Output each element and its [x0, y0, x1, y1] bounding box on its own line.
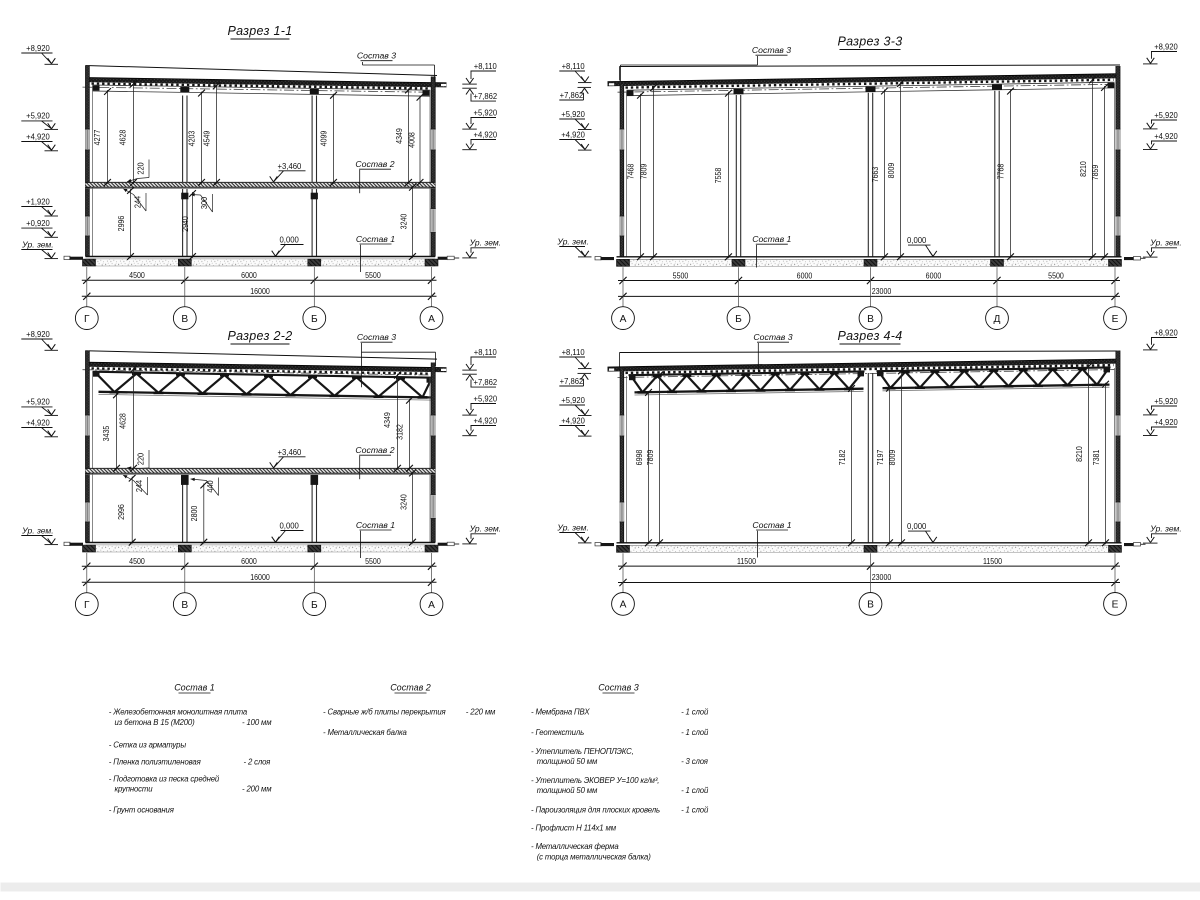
svg-text:толщиной 50 мм: толщиной 50 мм: [537, 757, 598, 766]
svg-text:Г: Г: [84, 314, 90, 325]
svg-text:7182: 7182: [837, 450, 847, 466]
svg-text:Состав 1: Состав 1: [174, 683, 215, 693]
svg-text:8009: 8009: [886, 163, 896, 179]
svg-text:Ур. зем.: Ур. зем.: [469, 238, 501, 248]
svg-text:11500: 11500: [737, 556, 756, 566]
svg-text:- Сетка из арматуры: - Сетка из арматуры: [109, 741, 187, 750]
svg-text:Б: Б: [735, 314, 742, 325]
svg-text:Разрез 3-3: Разрез 3-3: [838, 35, 903, 49]
svg-text:- Утеплитель ПЕНОПЛЭКС,: - Утеплитель ПЕНОПЛЭКС,: [531, 747, 634, 756]
svg-text:0,000: 0,000: [280, 235, 300, 244]
svg-text:+4,920: +4,920: [474, 416, 498, 425]
svg-text:6000: 6000: [241, 557, 257, 567]
svg-text:6000: 6000: [797, 271, 813, 281]
svg-text:+7,862: +7,862: [474, 92, 498, 101]
svg-text:+5,920: +5,920: [1154, 396, 1178, 405]
svg-text:- 1 слой: - 1 слой: [681, 708, 709, 717]
svg-text:- Пароизоляция для плоских кро: - Пароизоляция для плоских кровель: [531, 806, 660, 815]
svg-text:+4,920: +4,920: [474, 130, 498, 139]
svg-text:- 200 мм: - 200 мм: [242, 785, 272, 794]
svg-text:7809: 7809: [645, 450, 655, 466]
svg-text:7768: 7768: [996, 164, 1006, 180]
svg-text:4500: 4500: [129, 557, 145, 567]
svg-text:2996: 2996: [116, 504, 126, 520]
svg-text:В: В: [181, 600, 188, 611]
svg-text:3182: 3182: [395, 424, 405, 440]
svg-text:- 2 слоя: - 2 слоя: [244, 758, 272, 767]
svg-text:Состав 3: Состав 3: [598, 683, 639, 693]
svg-text:+8,920: +8,920: [26, 329, 50, 338]
svg-text:4349: 4349: [382, 412, 392, 428]
svg-text:- 3 слоя: - 3 слоя: [681, 757, 709, 766]
svg-text:+8,920: +8,920: [1154, 42, 1178, 51]
svg-text:2940: 2940: [180, 216, 190, 232]
svg-text:Ур. зем.: Ур. зем.: [469, 524, 501, 534]
svg-text:крупности: крупности: [115, 785, 154, 794]
svg-text:Ур. зем.: Ур. зем.: [1149, 238, 1181, 248]
svg-text:- Металлическая ферма: - Металлическая ферма: [531, 842, 619, 851]
svg-text:16000: 16000: [250, 286, 270, 296]
svg-text:- Сварные ж/б плиты перекрытия: - Сварные ж/б плиты перекрытия: [323, 708, 447, 717]
svg-text:+4,920: +4,920: [1154, 131, 1178, 140]
svg-text:5500: 5500: [1048, 271, 1064, 281]
svg-text:Состав 3: Состав 3: [752, 45, 791, 55]
svg-text:4203: 4203: [187, 131, 197, 147]
svg-text:+5,920: +5,920: [26, 397, 50, 406]
svg-text:+5,920: +5,920: [561, 395, 585, 404]
svg-text:+0,920: +0,920: [26, 219, 50, 228]
svg-text:толщиной 50 мм: толщиной 50 мм: [537, 786, 598, 795]
svg-text:+7,862: +7,862: [560, 376, 584, 385]
svg-text:из бетона В 15 (М200): из бетона В 15 (М200): [115, 718, 196, 727]
svg-text:Состав 2: Состав 2: [355, 159, 394, 169]
svg-text:+4,920: +4,920: [26, 418, 50, 427]
svg-text:3435: 3435: [101, 426, 111, 442]
svg-text:4008: 4008: [407, 132, 417, 148]
svg-text:- Подготовка из песка средней: - Подготовка из песка средней: [109, 775, 220, 784]
svg-text:+8,110: +8,110: [474, 61, 498, 70]
svg-text:+8,110: +8,110: [562, 61, 586, 70]
svg-text:+5,920: +5,920: [561, 109, 585, 118]
svg-text:7859: 7859: [1090, 165, 1100, 181]
svg-text:23000: 23000: [872, 573, 892, 583]
svg-text:Состав 2: Состав 2: [355, 445, 394, 455]
svg-text:- Утеплитель ЭКОВЕР У=100 кг/м: - Утеплитель ЭКОВЕР У=100 кг/м³,: [531, 776, 659, 785]
svg-text:Б: Б: [311, 600, 318, 611]
svg-text:Ур. зем.: Ур. зем.: [556, 236, 588, 246]
svg-text:- Пленка полиэтиленовая: - Пленка полиэтиленовая: [109, 758, 202, 767]
svg-text:Состав 1: Состав 1: [752, 520, 791, 530]
svg-text:Е: Е: [1112, 600, 1119, 611]
svg-text:4628: 4628: [118, 413, 128, 429]
svg-text:7197: 7197: [875, 450, 885, 466]
svg-text:Д: Д: [994, 314, 1001, 325]
svg-text:А: А: [620, 600, 627, 611]
svg-text:300: 300: [200, 196, 210, 209]
svg-text:+5,920: +5,920: [1154, 110, 1178, 119]
svg-text:+4,920: +4,920: [26, 132, 50, 141]
svg-text:Ур. зем.: Ур. зем.: [556, 522, 588, 532]
svg-text:7468: 7468: [626, 164, 636, 180]
svg-text:Состав 1: Состав 1: [356, 234, 395, 244]
svg-text:0,000: 0,000: [907, 236, 927, 245]
svg-text:- 220 мм: - 220 мм: [466, 708, 496, 717]
svg-text:+8,110: +8,110: [562, 347, 586, 356]
svg-text:(с торца металлическая балка): (с торца металлическая балка): [537, 853, 652, 862]
svg-text:Ур. зем.: Ур. зем.: [21, 525, 53, 535]
svg-text:+5,920: +5,920: [26, 111, 50, 120]
svg-text:- 1 слой: - 1 слой: [681, 786, 709, 795]
svg-text:220: 220: [136, 162, 146, 175]
svg-text:Г: Г: [84, 600, 90, 611]
svg-text:Е: Е: [1112, 314, 1119, 325]
svg-text:244: 244: [133, 195, 143, 208]
svg-text:Разрез 1-1: Разрез 1-1: [228, 24, 293, 38]
svg-text:4628: 4628: [118, 130, 128, 146]
svg-text:440: 440: [206, 480, 216, 493]
svg-text:7663: 7663: [870, 167, 880, 183]
svg-text:- Геотекстиль: - Геотекстиль: [531, 728, 584, 737]
svg-text:+3,460: +3,460: [278, 161, 302, 170]
svg-text:Состав 1: Состав 1: [752, 234, 791, 244]
svg-text:Ур. зем.: Ур. зем.: [1149, 524, 1181, 534]
svg-text:В: В: [181, 314, 188, 325]
svg-text:7809: 7809: [639, 164, 649, 180]
svg-text:7558: 7558: [713, 168, 723, 184]
svg-text:8009: 8009: [887, 450, 897, 466]
svg-text:- 1 слой: - 1 слой: [681, 806, 709, 815]
svg-text:5500: 5500: [673, 271, 689, 281]
svg-text:+7,862: +7,862: [474, 378, 498, 387]
svg-text:4500: 4500: [129, 271, 145, 281]
svg-text:- Профлист Н 114х1 мм: - Профлист Н 114х1 мм: [531, 824, 617, 833]
svg-text:Разрез 4-4: Разрез 4-4: [838, 329, 903, 343]
svg-text:+3,460: +3,460: [278, 447, 302, 456]
svg-text:220: 220: [136, 452, 146, 465]
svg-text:0,000: 0,000: [907, 522, 927, 531]
svg-text:4549: 4549: [202, 131, 212, 147]
svg-text:- 1 слой: - 1 слой: [681, 728, 709, 737]
svg-text:+7,862: +7,862: [560, 90, 584, 99]
svg-text:Состав 1: Состав 1: [356, 520, 395, 530]
svg-text:23000: 23000: [872, 286, 892, 296]
svg-text:+4,920: +4,920: [561, 130, 585, 139]
svg-text:Состав 3: Состав 3: [357, 332, 396, 342]
svg-text:6000: 6000: [926, 271, 942, 281]
svg-text:4277: 4277: [92, 130, 102, 146]
svg-text:Состав 2: Состав 2: [390, 683, 431, 693]
svg-text:- Металлическая балка: - Металлическая балка: [323, 728, 408, 737]
svg-text:3240: 3240: [399, 214, 409, 230]
svg-text:+1,920: +1,920: [26, 197, 50, 206]
svg-text:+4,920: +4,920: [1154, 417, 1178, 426]
svg-text:16000: 16000: [250, 572, 270, 582]
svg-text:+8,920: +8,920: [1154, 328, 1178, 337]
svg-text:- Железобетонная монолитная п: - Железобетонная монолитная плита: [109, 708, 248, 717]
svg-text:- 100 мм: - 100 мм: [242, 718, 272, 727]
svg-text:6000: 6000: [241, 271, 257, 281]
svg-text:4349: 4349: [394, 128, 404, 144]
svg-text:Состав 3: Состав 3: [753, 332, 792, 342]
svg-text:11500: 11500: [983, 556, 1002, 566]
svg-text:+5,920: +5,920: [474, 108, 498, 117]
svg-text:8210: 8210: [1074, 446, 1084, 462]
svg-text:А: А: [428, 600, 435, 611]
svg-text:+5,920: +5,920: [474, 394, 498, 403]
svg-text:В: В: [867, 600, 874, 611]
svg-text:5500: 5500: [365, 271, 381, 281]
svg-text:5500: 5500: [365, 557, 381, 567]
svg-text:2800: 2800: [189, 506, 199, 522]
svg-text:6998: 6998: [634, 450, 644, 466]
svg-text:Состав 3: Состав 3: [357, 51, 396, 61]
svg-text:8210: 8210: [1078, 161, 1088, 177]
svg-text:2996: 2996: [116, 216, 126, 232]
svg-text:Б: Б: [311, 314, 318, 325]
svg-text:А: А: [620, 314, 627, 325]
svg-text:7381: 7381: [1091, 450, 1101, 466]
svg-text:+8,110: +8,110: [474, 347, 498, 356]
svg-text:+8,920: +8,920: [26, 43, 50, 52]
svg-text:3240: 3240: [399, 494, 409, 510]
svg-text:А: А: [428, 314, 435, 325]
svg-text:- Грунт основания: - Грунт основания: [109, 806, 175, 815]
svg-text:4099: 4099: [319, 131, 329, 147]
svg-text:+4,920: +4,920: [561, 416, 585, 425]
svg-text:Разрез 2-2: Разрез 2-2: [228, 329, 293, 343]
svg-text:Ур. зем.: Ур. зем.: [21, 239, 53, 249]
svg-text:В: В: [867, 314, 874, 325]
svg-text:0,000: 0,000: [280, 521, 300, 530]
svg-text:- Мембрана ПВХ: - Мембрана ПВХ: [531, 708, 590, 717]
